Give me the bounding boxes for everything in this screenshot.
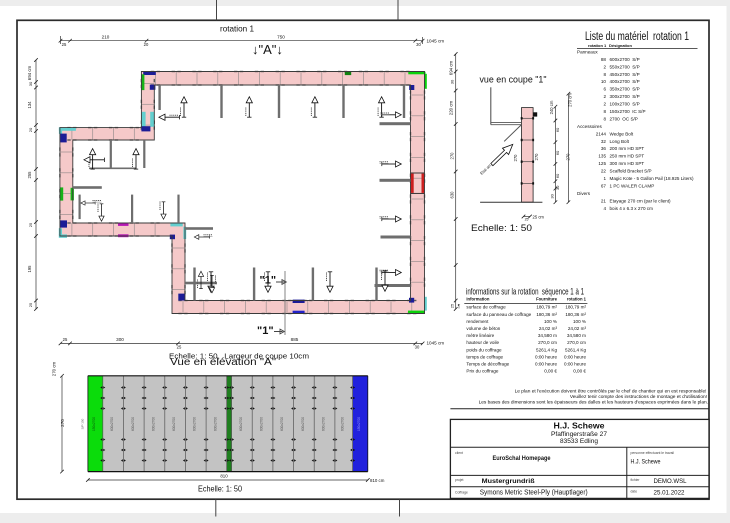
svg-text:400x2700 S/P: 400x2700 S/P: [610, 79, 640, 84]
svg-text:600x2700: 600x2700: [131, 417, 135, 431]
svg-text:2144: 2144: [596, 131, 607, 136]
svg-text:0:00 heure: 0:00 heure: [564, 362, 586, 367]
svg-text:H.J. Schewe: H.J. Schewe: [631, 459, 661, 466]
svg-text:5261,4 Kg: 5261,4 Kg: [536, 347, 557, 352]
svg-text:24,02 m³: 24,02 m³: [539, 326, 558, 331]
svg-text:Divers: Divers: [577, 191, 591, 196]
svg-text:600x2700: 600x2700: [213, 417, 217, 431]
svg-text:Désignation: Désignation: [609, 43, 632, 48]
svg-text:Fourniture: Fourniture: [536, 296, 558, 301]
svg-text:20: 20: [144, 42, 149, 47]
svg-text:surface de coffrage: surface de coffrage: [466, 305, 506, 310]
svg-text:600x2700: 600x2700: [110, 417, 114, 431]
svg-text:200 mm HD SPT: 200 mm HD SPT: [610, 146, 645, 151]
svg-text:450x2700 S/P: 450x2700 S/P: [610, 72, 640, 77]
svg-text:Panneaux: Panneaux: [577, 49, 598, 54]
svg-text:Les bases des dimensions sont: Les bases des dimensions sont les épaiss…: [479, 400, 708, 406]
svg-text:350x2700 S/P: 350x2700 S/P: [610, 87, 640, 92]
svg-text:600x2700: 600x2700: [341, 417, 345, 431]
svg-text:"1": "1": [257, 325, 274, 337]
svg-text:270 cm: 270 cm: [52, 361, 57, 376]
svg-text:2: 2: [603, 102, 606, 107]
svg-text:270,0 cm: 270,0 cm: [538, 340, 557, 345]
svg-text:83533 Edling: 83533 Edling: [560, 438, 598, 445]
svg-text:rotation 1: rotation 1: [588, 43, 607, 48]
svg-text:0,00 €: 0,00 €: [544, 369, 557, 374]
svg-text:6: 6: [603, 87, 606, 92]
svg-text:270: 270: [566, 153, 571, 161]
svg-text:22: 22: [601, 169, 607, 174]
svg-text:30: 30: [450, 79, 455, 84]
svg-text:S/P 150: S/P 150: [80, 418, 84, 429]
svg-text:180,36 m²: 180,36 m²: [565, 312, 586, 317]
svg-text:8: 8: [603, 117, 606, 122]
svg-text:25.01.2022: 25.01.2022: [654, 489, 685, 496]
svg-text:vue en coupe "1": vue en coupe "1": [480, 75, 547, 86]
svg-text:694 cm: 694 cm: [27, 65, 32, 80]
svg-text:Liste du matériel rotation 1: Liste du matériel rotation 1: [585, 31, 689, 43]
svg-text:0:00 heure: 0:00 heure: [535, 354, 557, 359]
svg-text:180,36 m²: 180,36 m²: [536, 312, 557, 317]
svg-text:25: 25: [525, 218, 529, 222]
svg-text:694 cm: 694 cm: [449, 60, 454, 75]
svg-text:Veuillez tenir compte des inst: Veuillez tenir compte des instructions d…: [570, 394, 707, 400]
svg-text:630: 630: [450, 191, 455, 199]
svg-text:220 cm: 220 cm: [449, 100, 454, 115]
svg-text:600x2700: 600x2700: [239, 417, 243, 431]
svg-text:100 %: 100 %: [544, 319, 557, 324]
svg-text:H.J. Schewe: H.J. Schewe: [554, 421, 605, 431]
svg-text:10: 10: [601, 79, 607, 84]
svg-text:Echelle: 1: 50: Echelle: 1: 50: [198, 484, 242, 494]
svg-text:temps de coffrage: temps de coffrage: [466, 354, 503, 359]
svg-text:32: 32: [601, 139, 607, 144]
svg-text:1 PC WALER CLAMP: 1 PC WALER CLAMP: [610, 184, 655, 189]
svg-text:Mustergrundriß: Mustergrundriß: [482, 478, 535, 485]
svg-text:Vue en élévation "A": Vue en élévation "A": [170, 357, 277, 368]
svg-text:Pfaffingerstraße 27: Pfaffingerstraße 27: [551, 431, 607, 438]
svg-text:rotation 1: rotation 1: [567, 296, 587, 301]
svg-text:600x2700: 600x2700: [280, 417, 284, 431]
svg-text:8: 8: [603, 109, 606, 114]
svg-text:Wedge Bolt: Wedge Bolt: [610, 131, 634, 136]
svg-text:date: date: [631, 490, 638, 494]
svg-text:810 cm: 810 cm: [370, 478, 385, 483]
svg-text:600x2700: 600x2700: [172, 417, 176, 431]
svg-text:mètre linéaire: mètre linéaire: [466, 333, 494, 338]
svg-text:24,02 m³: 24,02 m³: [568, 326, 587, 331]
svg-text:300: 300: [116, 337, 124, 342]
svg-text:100x2700 S/P: 100x2700 S/P: [610, 102, 640, 107]
svg-text:2: 2: [603, 64, 606, 69]
svg-text:30: 30: [415, 345, 420, 350]
svg-text:150x2700 IC S/P: 150x2700 IC S/P: [610, 109, 646, 114]
svg-text:21: 21: [601, 198, 607, 203]
svg-text:600x2700 S/P: 600x2700 S/P: [610, 57, 640, 62]
svg-text:Magic Kote - 5 Gallon Pail (18: Magic Kote - 5 Gallon Pail (18.925 Liter…: [610, 176, 694, 181]
svg-text:250 mm HD SPT: 250 mm HD SPT: [610, 154, 645, 159]
svg-text:60: 60: [555, 173, 560, 178]
svg-text:60: 60: [555, 150, 560, 155]
svg-text:0:00 heure: 0:00 heure: [535, 362, 557, 367]
svg-text:550x2700 S/P: 550x2700 S/P: [610, 64, 640, 69]
svg-text:25: 25: [28, 222, 33, 227]
svg-text:125: 125: [598, 161, 606, 166]
svg-text:100 %: 100 %: [573, 319, 586, 324]
svg-text:300x2700 S/P: 300x2700 S/P: [610, 94, 640, 99]
svg-text:Etayage 270 cm (par le client): Etayage 270 cm (par le client): [610, 198, 671, 203]
svg-text:EuroSchal Homepage: EuroSchal Homepage: [493, 455, 551, 462]
svg-text:Temps de décoffrage: Temps de décoffrage: [466, 362, 509, 367]
svg-text:270 cm: 270 cm: [568, 93, 573, 107]
svg-text:30: 30: [555, 185, 560, 190]
svg-text:25 cm: 25 cm: [533, 214, 545, 219]
svg-text:bois 4 x 6.3 x 270 cm: bois 4 x 6.3 x 270 cm: [610, 206, 654, 211]
svg-text:270: 270: [534, 153, 539, 161]
svg-text:rotation 1: rotation 1: [220, 24, 254, 34]
svg-text:180,79 m²: 180,79 m²: [565, 305, 586, 310]
svg-text:projet: projet: [455, 478, 464, 482]
svg-text:2: 2: [603, 94, 606, 99]
svg-text:30: 30: [550, 193, 555, 198]
svg-text:270: 270: [60, 419, 65, 427]
svg-text:hauteur de voile: hauteur de voile: [466, 340, 499, 345]
svg-text:810: 810: [220, 474, 228, 479]
svg-text:information: information: [466, 296, 489, 301]
svg-text:34,580 m: 34,580 m: [538, 333, 557, 338]
svg-text:30: 30: [28, 81, 33, 86]
svg-text:↓"A"↓: ↓"A"↓: [252, 42, 283, 57]
svg-text:Symons Metric Steel-Ply (Haupt: Symons Metric Steel-Ply (Hauptlager): [480, 489, 588, 496]
svg-text:885: 885: [291, 337, 299, 342]
svg-text:600x2700: 600x2700: [151, 417, 155, 431]
svg-text:Le plan et l'exécution doivent: Le plan et l'exécution doivent être cont…: [515, 389, 707, 395]
svg-text:25: 25: [62, 42, 67, 47]
svg-text:34,580 m: 34,580 m: [567, 333, 586, 338]
svg-text:195: 195: [27, 265, 32, 273]
svg-text:1045 cm: 1045 cm: [427, 341, 445, 346]
svg-text:270: 270: [513, 154, 518, 162]
svg-text:client: client: [455, 451, 463, 455]
svg-text:personne effectuant le travail: personne effectuant le travail: [631, 451, 675, 455]
svg-text:Coffrage: Coffrage: [455, 490, 468, 494]
svg-text:¶: ¶: [458, 304, 461, 310]
svg-text:180,79 m²: 180,79 m²: [536, 305, 557, 310]
svg-text:4: 4: [603, 206, 606, 211]
svg-text:5261,4 Kg: 5261,4 Kg: [565, 347, 586, 352]
svg-text:135: 135: [598, 154, 606, 159]
svg-text:600x2700: 600x2700: [260, 417, 264, 431]
svg-text:210: 210: [102, 34, 110, 39]
svg-text:150x2700: 150x2700: [357, 417, 361, 431]
svg-text:DEMO.WSL: DEMO.WSL: [654, 478, 687, 485]
svg-text:2700 OC S/P: 2700 OC S/P: [610, 117, 638, 122]
svg-text:25: 25: [28, 302, 33, 307]
svg-text:Echelle: 1: 50: Echelle: 1: 50: [471, 223, 532, 233]
svg-text:60: 60: [555, 127, 560, 132]
svg-text:30: 30: [416, 42, 421, 47]
svg-text:25: 25: [63, 337, 68, 342]
svg-text:300 mm HD SPT: 300 mm HD SPT: [610, 161, 645, 166]
svg-text:270,0 cm: 270,0 cm: [567, 340, 586, 345]
svg-text:0,00 €: 0,00 €: [573, 369, 586, 374]
svg-text:25: 25: [177, 344, 182, 349]
svg-text:270: 270: [450, 152, 455, 160]
svg-text:Scaffold Bracket S/P: Scaffold Bracket S/P: [610, 169, 652, 174]
svg-text:20: 20: [28, 127, 33, 132]
svg-text:surface du panneau de coffrage: surface du panneau de coffrage: [466, 312, 531, 317]
svg-text:volume de béton: volume de béton: [466, 326, 500, 331]
svg-text:Prix du coffrage: Prix du coffrage: [466, 369, 499, 374]
svg-text:150x2700: 150x2700: [92, 417, 96, 431]
svg-text:600x2700: 600x2700: [193, 417, 197, 431]
svg-text:134: 134: [27, 101, 32, 109]
svg-text:1: 1: [603, 176, 606, 181]
svg-text:600x2700: 600x2700: [301, 417, 305, 431]
svg-text:750: 750: [277, 34, 285, 39]
svg-text:1045 cm: 1045 cm: [427, 38, 445, 43]
svg-text:25: 25: [450, 303, 455, 308]
svg-text:36: 36: [601, 146, 607, 151]
svg-text:Long Bolt: Long Bolt: [610, 139, 630, 144]
svg-text:rendement: rendement: [466, 319, 489, 324]
svg-text:0:00 heure: 0:00 heure: [564, 354, 586, 359]
svg-text:240 cm: 240 cm: [549, 100, 554, 114]
svg-text:Accessoires: Accessoires: [577, 124, 602, 129]
svg-text:88: 88: [601, 57, 607, 62]
svg-text:255: 255: [27, 171, 32, 179]
svg-text:67: 67: [601, 184, 607, 189]
svg-text:poids du coffrage: poids du coffrage: [466, 347, 502, 352]
svg-text:600x2700: 600x2700: [322, 417, 326, 431]
svg-text:"1": "1": [260, 275, 277, 287]
svg-text:fichier: fichier: [631, 478, 641, 482]
svg-text:8: 8: [603, 72, 606, 77]
